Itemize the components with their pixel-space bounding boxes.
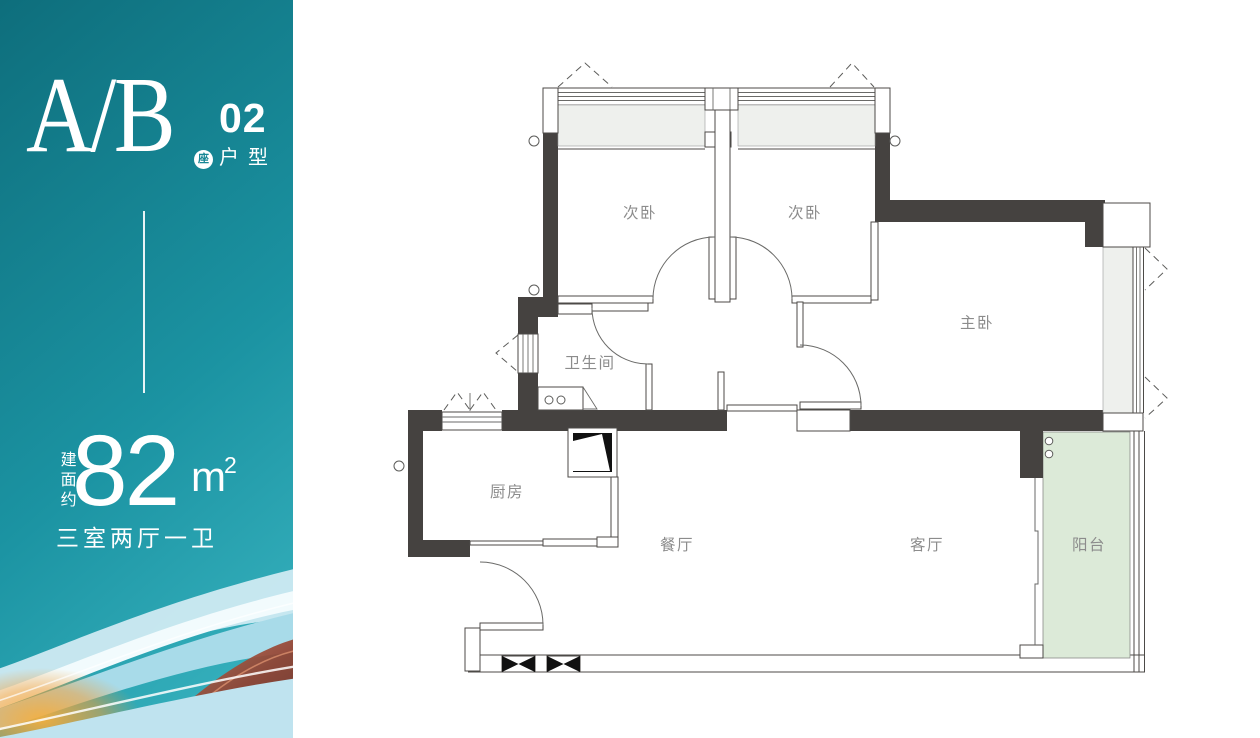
shaft-symbol xyxy=(547,656,580,672)
room-label-master-bedroom: 主卧 xyxy=(960,314,994,332)
window-kitchen xyxy=(442,392,502,430)
bathroom-sink-counter xyxy=(538,387,597,410)
door-bedroom-right xyxy=(730,237,792,299)
floor-plan: 次卧 次卧 主卧 卫生间 厨房 餐厅 客厅 阳台 xyxy=(0,0,1260,738)
room-label-bedroom2b: 次卧 xyxy=(788,204,822,222)
sliding-door-balcony xyxy=(1035,478,1038,645)
room-label-dining: 餐厅 xyxy=(660,536,694,554)
kitchen-flue-symbol xyxy=(568,428,617,477)
window-master-bay xyxy=(1103,203,1167,431)
room-label-bathroom: 卫生间 xyxy=(564,354,615,372)
room-label-kitchen: 厨房 xyxy=(490,483,524,501)
poster: A/B 座 02 户型 建面约 82 m 2 三室两厅一卫 xyxy=(0,0,1260,738)
room-label-balcony: 阳台 xyxy=(1072,536,1106,554)
room-label-bedroom2a: 次卧 xyxy=(623,204,657,222)
room-label-living: 客厅 xyxy=(910,536,944,554)
door-master-bedroom xyxy=(800,345,861,409)
door-bedroom-left xyxy=(653,237,715,299)
door-entry xyxy=(480,562,543,630)
room-labels: 次卧 次卧 主卧 卫生间 厨房 餐厅 客厅 阳台 xyxy=(490,204,1106,554)
shaft-symbol xyxy=(502,656,535,672)
window-bathroom xyxy=(496,334,538,373)
